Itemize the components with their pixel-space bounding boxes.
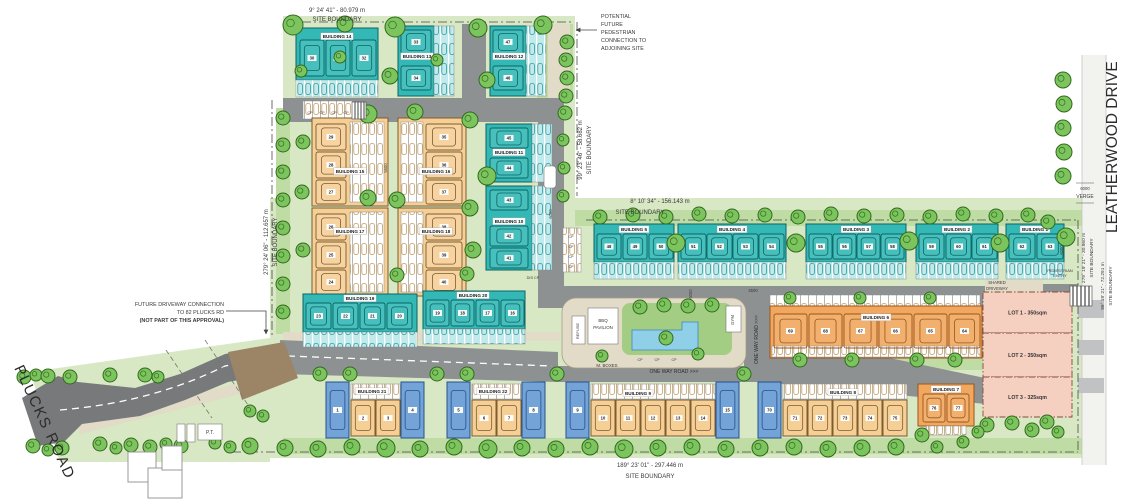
label: POTENTIAL: [601, 14, 631, 20]
building-label: BUILDING 11: [495, 150, 524, 155]
unit-number: 32: [362, 56, 367, 61]
unit-number: 65: [928, 329, 933, 334]
tree-icon: [824, 207, 838, 221]
tree-icon: [558, 106, 572, 120]
unit-number: 54: [769, 244, 774, 249]
unit-number: 63: [1048, 244, 1053, 249]
unit-number: 71: [793, 416, 798, 421]
future-driveway-leader: [226, 311, 266, 334]
building-label: BUILDING 17: [336, 229, 365, 234]
garage-strip: [401, 122, 423, 202]
label: (NOT PART OF THIS APPROVAL): [140, 318, 225, 324]
tree-icon: [692, 348, 704, 360]
tree-icon: [283, 15, 303, 35]
tree-icon: [991, 234, 1009, 252]
tree-icon: [548, 441, 564, 457]
building-label: BUILDING 10: [495, 219, 524, 224]
label: ENTRY: [1053, 273, 1067, 278]
building-building-5: 484950BUILDING 5: [594, 224, 674, 279]
unit-number: 46: [506, 76, 511, 81]
tree-icon: [758, 208, 772, 222]
tree-icon: [462, 112, 478, 128]
label: GYM: [730, 315, 735, 325]
tree-icon: [412, 441, 428, 457]
unit-number: 28: [329, 163, 334, 168]
unit-number: 77: [956, 406, 961, 411]
tree-icon: [725, 209, 739, 223]
tree-icon: [593, 210, 607, 224]
tree-icon: [737, 367, 751, 381]
tree-icon: [948, 353, 962, 367]
tree-icon: [334, 51, 346, 63]
building-building-16: 353637BUILDING 16: [398, 118, 466, 206]
garage-strip: [532, 186, 552, 270]
tree-icon: [313, 367, 327, 381]
unit-number: 15: [725, 408, 730, 413]
tree-icon: [295, 65, 307, 77]
label: CP: [638, 358, 644, 362]
unit-number: 59: [929, 244, 934, 249]
tree-icon: [360, 190, 376, 206]
tree-icon: [310, 441, 326, 457]
label: CP: [344, 111, 350, 115]
unit-number: 23: [316, 314, 321, 319]
unit-number: 33: [414, 40, 419, 45]
tree-icon: [557, 134, 569, 146]
building-building-12: 4746BUILDING 12: [490, 26, 546, 96]
building-building-17: 262524BUILDING 17: [312, 208, 388, 296]
unit-number: 70: [767, 408, 772, 413]
tree-icon: [276, 277, 290, 291]
tree-icon: [650, 440, 666, 456]
building-label: BUILDING 5: [621, 227, 647, 232]
unit-number: 76: [932, 406, 937, 411]
building-label: BUILDING 21: [358, 389, 387, 394]
tree-icon: [972, 426, 984, 438]
unit-number: 62: [1020, 244, 1025, 249]
tree-icon: [1052, 426, 1064, 438]
tree-icon: [791, 210, 805, 224]
unit-number: 30: [310, 56, 315, 61]
garage-strip: [806, 262, 906, 279]
tree-icon: [296, 243, 310, 257]
tree-icon: [138, 368, 152, 382]
label: 6000: [688, 289, 693, 299]
tree-icon: [382, 68, 398, 84]
tree-icon: [103, 368, 117, 382]
tree-icon: [1055, 120, 1071, 136]
unit-number: 20: [397, 314, 402, 319]
garage-strip: [303, 332, 417, 347]
garage-strip: [526, 26, 546, 96]
label: SITE BOUNDARY: [1108, 266, 1114, 306]
label: PEDESTRIAN: [601, 30, 636, 36]
tree-icon: [582, 439, 598, 455]
label: SHARED: [988, 280, 1005, 285]
tree-icon: [276, 305, 290, 319]
label: 5500: [383, 163, 388, 173]
label: SITE BOUNDARY: [313, 17, 362, 23]
tree-icon: [110, 442, 122, 454]
unit-number: 67: [858, 329, 863, 334]
tree-icon: [1025, 423, 1039, 437]
label: DIS CP: [527, 276, 540, 280]
tree-icon: [276, 111, 290, 125]
unit-number: 16: [510, 311, 515, 316]
tree-icon: [633, 300, 647, 314]
tree-icon: [26, 439, 40, 453]
unit-number: 25: [329, 253, 334, 258]
building-building-18: 383940BUILDING 18: [398, 208, 466, 296]
label: FUTURE DRIVEWAY CONNECTION: [135, 302, 224, 308]
tree-icon: [793, 353, 807, 367]
label: SITE BOUNDARY: [273, 218, 279, 267]
tree-icon: [786, 439, 802, 455]
label: CP: [332, 111, 338, 115]
building-label: BUILDING 3: [843, 227, 869, 232]
tree-icon: [460, 267, 474, 281]
tree-icon: [385, 17, 405, 37]
tree-icon: [752, 440, 768, 456]
unit-number: 26: [329, 225, 334, 230]
tree-icon: [559, 53, 573, 67]
label: SITE BOUNDARY: [587, 126, 593, 175]
building-building-13: 3334BUILDING 13: [398, 26, 454, 96]
label: P.T.: [206, 430, 214, 436]
building-label: BUILDING 13: [403, 54, 432, 59]
label: PAVILION: [593, 325, 613, 330]
tree-icon: [615, 440, 633, 458]
building-label: BUILDING 18: [422, 229, 451, 234]
tree-icon: [1041, 215, 1055, 229]
tree-icon: [390, 268, 404, 282]
unit-number: 11: [626, 416, 631, 421]
tree-icon: [479, 440, 497, 458]
tree-icon: [1056, 96, 1072, 112]
label: DRIVEWAY: [986, 286, 1008, 291]
label: BBQ: [598, 318, 608, 323]
building-building-22: 5678BUILDING 22: [447, 382, 545, 438]
unit-number: 21: [370, 314, 375, 319]
tree-icon: [854, 292, 866, 304]
unit-number: 43: [507, 198, 512, 203]
unit-number: 73: [843, 416, 848, 421]
tree-icon: [667, 234, 685, 252]
label: 99° 23' 46" - 58.682 m: [578, 120, 584, 179]
unit-number: 61: [982, 244, 987, 249]
label: 99° 19' 21" - 72.291 m: [1100, 262, 1106, 309]
lot-label: LOT 1 - 350sqm: [1008, 311, 1047, 317]
unit-number: 36: [442, 163, 447, 168]
garage-strip: [423, 329, 525, 344]
unit-number: 53: [743, 244, 748, 249]
unit-number: 42: [507, 234, 512, 239]
tree-icon: [93, 437, 107, 451]
label: VERGE: [1076, 194, 1094, 200]
lot-label: LOT 3 - 325sqm: [1008, 395, 1047, 401]
unit-number: 58: [890, 244, 895, 249]
label: 8° 10' 34" - 156.143 m: [630, 199, 689, 205]
car-icon: [544, 166, 556, 188]
label: FUTURE: [601, 22, 623, 28]
unit-number: 69: [788, 329, 793, 334]
unit-number: 44: [507, 166, 512, 171]
tree-icon: [1055, 72, 1071, 88]
tree-icon: [257, 410, 269, 422]
tree-icon: [377, 439, 395, 457]
label: CP: [569, 245, 575, 249]
tree-icon: [956, 207, 970, 221]
tree-icon: [460, 367, 474, 381]
tree-icon: [596, 350, 608, 362]
tree-icon: [462, 200, 478, 216]
label: 6000: [548, 209, 553, 219]
tree-icon: [550, 367, 564, 381]
lot: LOT 3 - 325sqm: [983, 377, 1072, 417]
label: 6000: [1059, 245, 1064, 255]
pedestrian-crossing-icon: [352, 102, 366, 119]
unit-number: 27: [329, 190, 334, 195]
unit-number: 10: [601, 416, 606, 421]
building-building-9: 9101112131415BUILDING 9: [566, 382, 739, 438]
tree-icon: [557, 190, 569, 202]
label: CP: [569, 255, 575, 259]
tree-icon: [718, 441, 734, 457]
unit-number: 48: [607, 244, 612, 249]
tree-icon: [534, 16, 552, 34]
label: REFUSE: [575, 323, 580, 340]
tree-icon: [514, 440, 530, 456]
tree-icon: [558, 162, 570, 174]
label: TO 82 PLUCKS RD: [177, 310, 224, 316]
label: 4500: [748, 288, 758, 293]
unit-number: 66: [893, 329, 898, 334]
tree-icon: [1021, 208, 1035, 222]
building-label: BUILDING 2: [944, 227, 970, 232]
tree-icon: [924, 292, 936, 304]
unit-number: 51: [691, 244, 696, 249]
building-building-7: 7677BUILDING 7: [918, 384, 974, 435]
garage-strip: [350, 212, 384, 292]
site-plan: LOT 1 - 350sqmLOT 2 - 350sqmLOT 3 - 325s…: [0, 0, 1127, 500]
tree-icon: [910, 353, 924, 367]
tree-icon: [1040, 415, 1054, 429]
building-label: BUILDING 7: [933, 387, 959, 392]
tree-icon: [344, 439, 360, 455]
tree-icon: [705, 298, 719, 312]
lot: LOT 1 - 350sqm: [983, 292, 1072, 333]
label: SITE BOUNDARY: [616, 210, 665, 216]
tree-icon: [277, 440, 293, 456]
unit-number: 75: [893, 416, 898, 421]
tree-icon: [845, 353, 859, 367]
tree-icon: [430, 367, 444, 381]
tree-icon: [931, 441, 943, 453]
tree-icon: [888, 439, 904, 455]
tree-icon: [854, 440, 870, 456]
tree-icon: [242, 438, 258, 454]
tree-icon: [446, 439, 462, 455]
tree-icon: [915, 428, 929, 442]
tree-icon: [469, 19, 487, 37]
building-building-10: 434241BUILDING 10: [486, 186, 552, 270]
site-plan-svg: LOT 1 - 350sqmLOT 2 - 350sqmLOT 3 - 325s…: [0, 0, 1127, 500]
label: SITE BOUNDARY: [1089, 238, 1095, 278]
tree-icon: [244, 405, 256, 417]
tree-icon: [465, 242, 481, 258]
label: CONNECTION TO: [601, 38, 646, 44]
label: 279° 19' 21" - 30.960 m: [1081, 233, 1087, 283]
unit-number: 14: [701, 416, 706, 421]
unit-number: 60: [956, 244, 961, 249]
unit-number: 29: [329, 135, 334, 140]
label: 189° 23' 01" - 297.446 m: [617, 463, 683, 469]
label: CP: [655, 358, 661, 362]
unit-number: 34: [414, 76, 419, 81]
label: SITE BOUNDARY: [626, 474, 675, 480]
tree-icon: [276, 138, 290, 152]
unit-number: 39: [442, 253, 447, 258]
unit-number: 40: [442, 280, 447, 285]
building-building-21: 1234BUILDING 21: [326, 382, 424, 438]
unit-number: 72: [818, 416, 823, 421]
building-label: BUILDING 22: [479, 389, 508, 394]
label: 6000: [1080, 186, 1090, 191]
tree-icon: [659, 331, 673, 345]
tree-icon: [559, 89, 573, 103]
bus-shelter: [187, 424, 195, 442]
tree-icon: [657, 298, 671, 312]
lot-label: LOT 2 - 350sqm: [1008, 353, 1047, 359]
unit-number: 24: [329, 280, 334, 285]
building-building-6: 696867666564BUILDING 6: [770, 306, 982, 358]
tree-icon: [900, 232, 918, 250]
unit-number: 74: [868, 416, 873, 421]
label: ONE WAY ROAD >>>: [650, 369, 699, 375]
label: 279° 24' 06" - 112.657 m: [264, 209, 270, 275]
building-label: BUILDING 8: [830, 390, 856, 395]
building-building-20: 19181716BUILDING 20: [423, 291, 525, 344]
tree-icon: [152, 371, 164, 383]
tree-icon: [560, 71, 574, 85]
tree-icon: [389, 192, 405, 208]
unit-number: 19: [435, 311, 440, 316]
carpark-building6: [770, 295, 980, 306]
tree-icon: [124, 438, 138, 452]
unit-number: 56: [842, 244, 847, 249]
label: LEATHERWOOD DRIVE: [1104, 61, 1121, 233]
unit-number: 47: [506, 40, 511, 45]
building-building-4: 51525354BUILDING 4: [678, 224, 786, 279]
label: CP: [672, 358, 678, 362]
label: 9° 24' 41" - 80.979 m: [309, 8, 365, 14]
tree-icon: [276, 165, 290, 179]
tree-icon: [407, 104, 423, 120]
tree-icon: [784, 292, 796, 304]
unit-number: 22: [343, 314, 348, 319]
building-label: BUILDING 16: [422, 169, 451, 174]
label: ADJOINING SITE: [601, 46, 644, 52]
tree-icon: [1056, 144, 1072, 160]
tree-icon: [1055, 168, 1071, 184]
building-label: BUILDING 14: [323, 34, 352, 39]
tree-icon: [957, 436, 969, 448]
unit-number: 68: [823, 329, 828, 334]
unit-number: 52: [717, 244, 722, 249]
tree-icon: [1005, 416, 1019, 430]
tree-icon: [479, 72, 495, 88]
label: CP: [320, 111, 326, 115]
tree-icon: [684, 439, 700, 455]
tree-icon: [41, 369, 55, 383]
pedestrian-entry-icon: [1070, 286, 1092, 306]
tree-icon: [63, 370, 77, 384]
building-building-15: 292827BUILDING 15: [312, 118, 388, 206]
garage-strip: [401, 212, 423, 292]
tree-icon: [1057, 228, 1075, 246]
unit-number: 12: [651, 416, 656, 421]
building-label: BUILDING 15: [336, 169, 365, 174]
unit-number: 35: [442, 135, 447, 140]
unit-number: 18: [460, 311, 465, 316]
unit-number: 17: [485, 311, 490, 316]
garage-strip: [916, 262, 998, 279]
lots-layer: LOT 1 - 350sqmLOT 2 - 350sqmLOT 3 - 325s…: [983, 292, 1072, 417]
tree-icon: [560, 35, 574, 49]
label: CP: [569, 235, 575, 239]
tree-icon: [989, 209, 1003, 223]
unit-number: 55: [818, 244, 823, 249]
building-label: BUILDING 4: [719, 227, 745, 232]
bus-shelter: [177, 424, 185, 442]
tree-icon: [681, 299, 695, 313]
tree-icon: [820, 441, 836, 457]
unit-number: 64: [962, 329, 967, 334]
tree-icon: [276, 193, 290, 207]
tree-icon: [224, 441, 236, 453]
label: CP: [569, 265, 575, 269]
unit-number: 57: [866, 244, 871, 249]
building-label: BUILDING 6: [863, 315, 889, 320]
label: CP: [308, 111, 314, 115]
existing-house: [128, 446, 182, 498]
building-building-19: 23222120BUILDING 19: [303, 294, 417, 347]
garage-strip: [926, 426, 966, 435]
unit-number: 37: [442, 190, 447, 195]
unit-number: 41: [507, 256, 512, 261]
lot: LOT 2 - 350sqm: [983, 333, 1072, 377]
tree-icon: [343, 367, 357, 381]
building-building-3: 55565758BUILDING 3: [806, 224, 906, 279]
garage-strip: [594, 262, 674, 279]
label: ONE WAY ROAD >>>: [754, 315, 760, 364]
garage-strip: [678, 262, 786, 279]
tree-icon: [857, 209, 871, 223]
unit-number: 13: [676, 416, 681, 421]
carpark-top: [303, 101, 353, 119]
tree-icon: [296, 135, 310, 149]
tree-icon: [431, 54, 443, 66]
tree-icon: [692, 207, 706, 221]
tree-icon: [890, 208, 904, 222]
tree-icon: [478, 167, 496, 185]
building-label: BUILDING 20: [459, 293, 488, 298]
unit-number: 50: [659, 244, 664, 249]
building-building-2: 596061BUILDING 2: [916, 224, 998, 279]
building-label: BUILDING 19: [346, 296, 375, 301]
tree-icon: [295, 185, 309, 199]
unit-number: 45: [507, 136, 512, 141]
